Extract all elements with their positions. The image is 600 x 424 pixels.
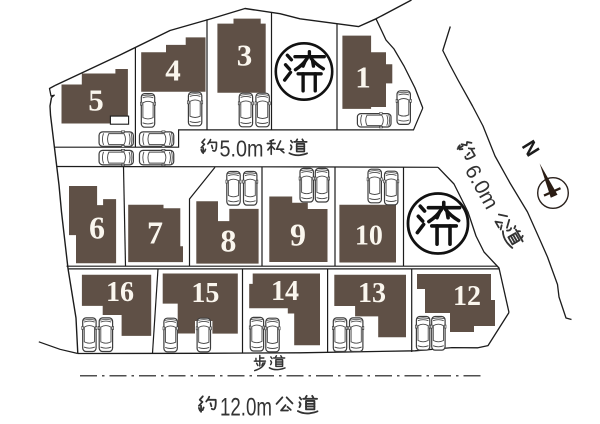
svg-text:15: 15 [191, 278, 219, 309]
svg-text:13: 13 [358, 278, 386, 309]
svg-text:8: 8 [220, 223, 236, 259]
svg-text:12: 12 [453, 281, 481, 312]
svg-text:14: 14 [271, 276, 299, 307]
svg-text:10: 10 [355, 221, 383, 252]
svg-text:1: 1 [355, 60, 371, 95]
svg-text:12.0m: 12.0m [220, 393, 272, 421]
svg-text:16: 16 [106, 277, 134, 308]
svg-text:3: 3 [237, 38, 253, 73]
svg-text:6: 6 [89, 210, 105, 246]
svg-text:5: 5 [88, 83, 104, 118]
svg-text:5.0m: 5.0m [220, 136, 264, 162]
svg-text:9: 9 [290, 217, 306, 253]
svg-text:7: 7 [147, 215, 163, 251]
svg-text:4: 4 [165, 53, 181, 88]
